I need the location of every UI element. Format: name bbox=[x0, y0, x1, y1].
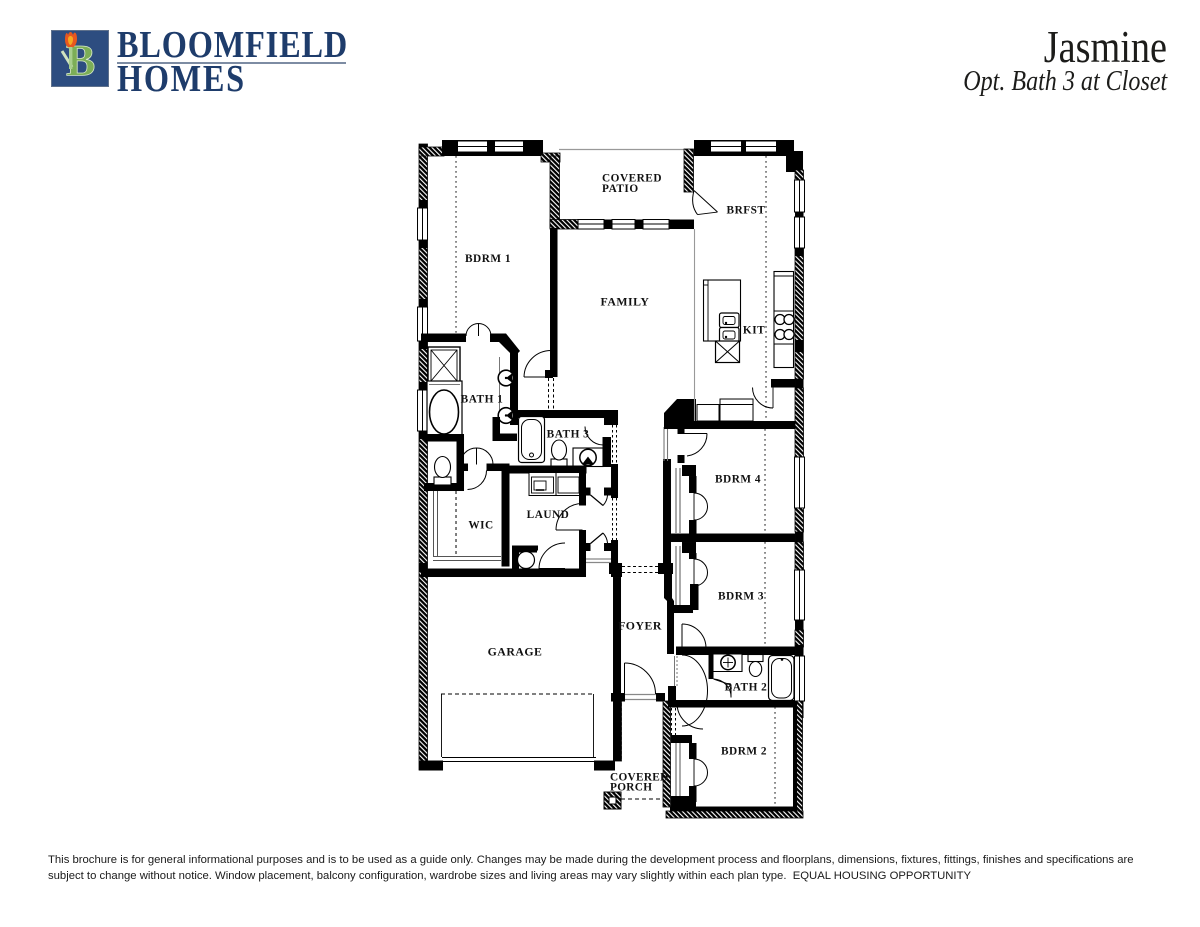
svg-text:KIT: KIT bbox=[743, 325, 765, 337]
svg-text:BATH 3: BATH 3 bbox=[547, 429, 590, 441]
svg-text:BDRM 2: BDRM 2 bbox=[721, 746, 767, 758]
svg-text:FOYER: FOYER bbox=[618, 619, 662, 633]
svg-text:GARAGE: GARAGE bbox=[488, 645, 543, 659]
svg-text:BRFST: BRFST bbox=[727, 205, 766, 217]
svg-text:BATH 2: BATH 2 bbox=[725, 682, 768, 694]
svg-text:FAMILY: FAMILY bbox=[601, 295, 650, 309]
svg-text:BATH 1: BATH 1 bbox=[461, 394, 504, 406]
svg-text:LAUND: LAUND bbox=[527, 509, 570, 521]
svg-text:PORCH: PORCH bbox=[610, 782, 652, 794]
svg-text:PATIO: PATIO bbox=[602, 183, 639, 195]
svg-text:BDRM 1: BDRM 1 bbox=[465, 253, 511, 265]
svg-text:WIC: WIC bbox=[468, 520, 493, 532]
svg-text:BDRM 3: BDRM 3 bbox=[718, 591, 764, 603]
svg-text:BDRM 4: BDRM 4 bbox=[715, 474, 761, 486]
